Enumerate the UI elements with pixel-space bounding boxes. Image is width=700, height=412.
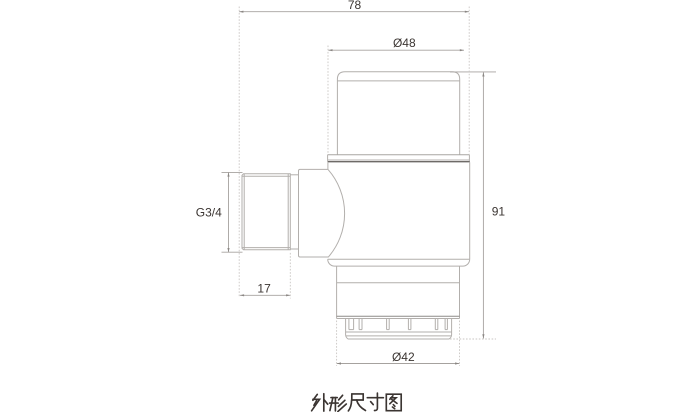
svg-text:Ø42: Ø42 (392, 350, 415, 364)
svg-text:Ø48: Ø48 (393, 36, 416, 50)
svg-text:78: 78 (348, 0, 362, 12)
svg-text:17: 17 (257, 281, 271, 295)
svg-text:91: 91 (492, 205, 506, 219)
svg-text:G3/4: G3/4 (196, 206, 222, 220)
